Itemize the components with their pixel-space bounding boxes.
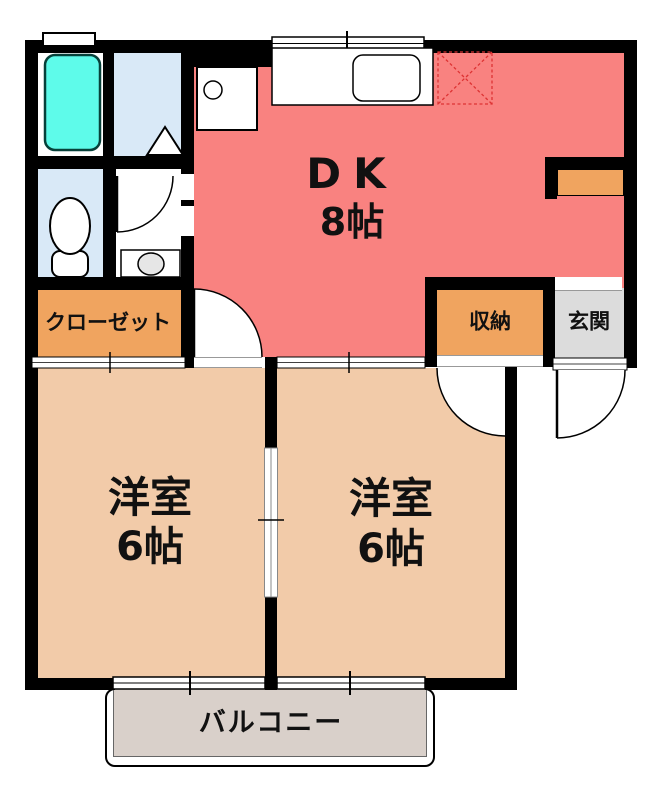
- fixtures-layer: [0, 0, 665, 800]
- western-room-2-size: 6帖: [357, 529, 425, 569]
- bathtub: [45, 55, 100, 150]
- western-room-1-name: 洋室: [108, 477, 192, 519]
- balcony-window-room2: [277, 671, 425, 695]
- balcony-label: バルコニー: [199, 710, 343, 737]
- washbasin: [121, 250, 180, 277]
- floor-plan: DK 8帖 洋室 6帖 洋室 6帖 クローゼット 収納 玄関 バルコニー: [0, 0, 665, 800]
- dk-room-name: DK: [306, 153, 397, 195]
- entrance-label: 玄関: [568, 312, 610, 333]
- dk-room-size: 8帖: [320, 203, 384, 241]
- entrance-threshold: [553, 358, 627, 370]
- closet-sliding-door: [32, 352, 185, 373]
- storage-door-arc: [437, 368, 505, 436]
- western-room-2-name: 洋室: [349, 478, 433, 520]
- washing-machine-pan: [197, 67, 257, 130]
- refrigerator-space: [438, 52, 492, 104]
- kitchen-sink-counter: [272, 48, 433, 105]
- room2-sliding-door: [277, 352, 425, 373]
- toilet: [50, 198, 90, 277]
- closet-label: クローゼット: [45, 313, 171, 334]
- hallway-door-arc: [117, 176, 173, 232]
- entrance-door-arc: [557, 370, 625, 438]
- room1-door-arc: [194, 289, 262, 357]
- western-room-1-size: 6帖: [116, 527, 184, 567]
- storage-label: 収納: [469, 312, 511, 333]
- balcony-window-room1: [113, 671, 265, 695]
- bath-door-triangle-icon: [147, 127, 183, 155]
- bath-window: [43, 33, 95, 46]
- midrooms-sliding-door: [258, 448, 284, 597]
